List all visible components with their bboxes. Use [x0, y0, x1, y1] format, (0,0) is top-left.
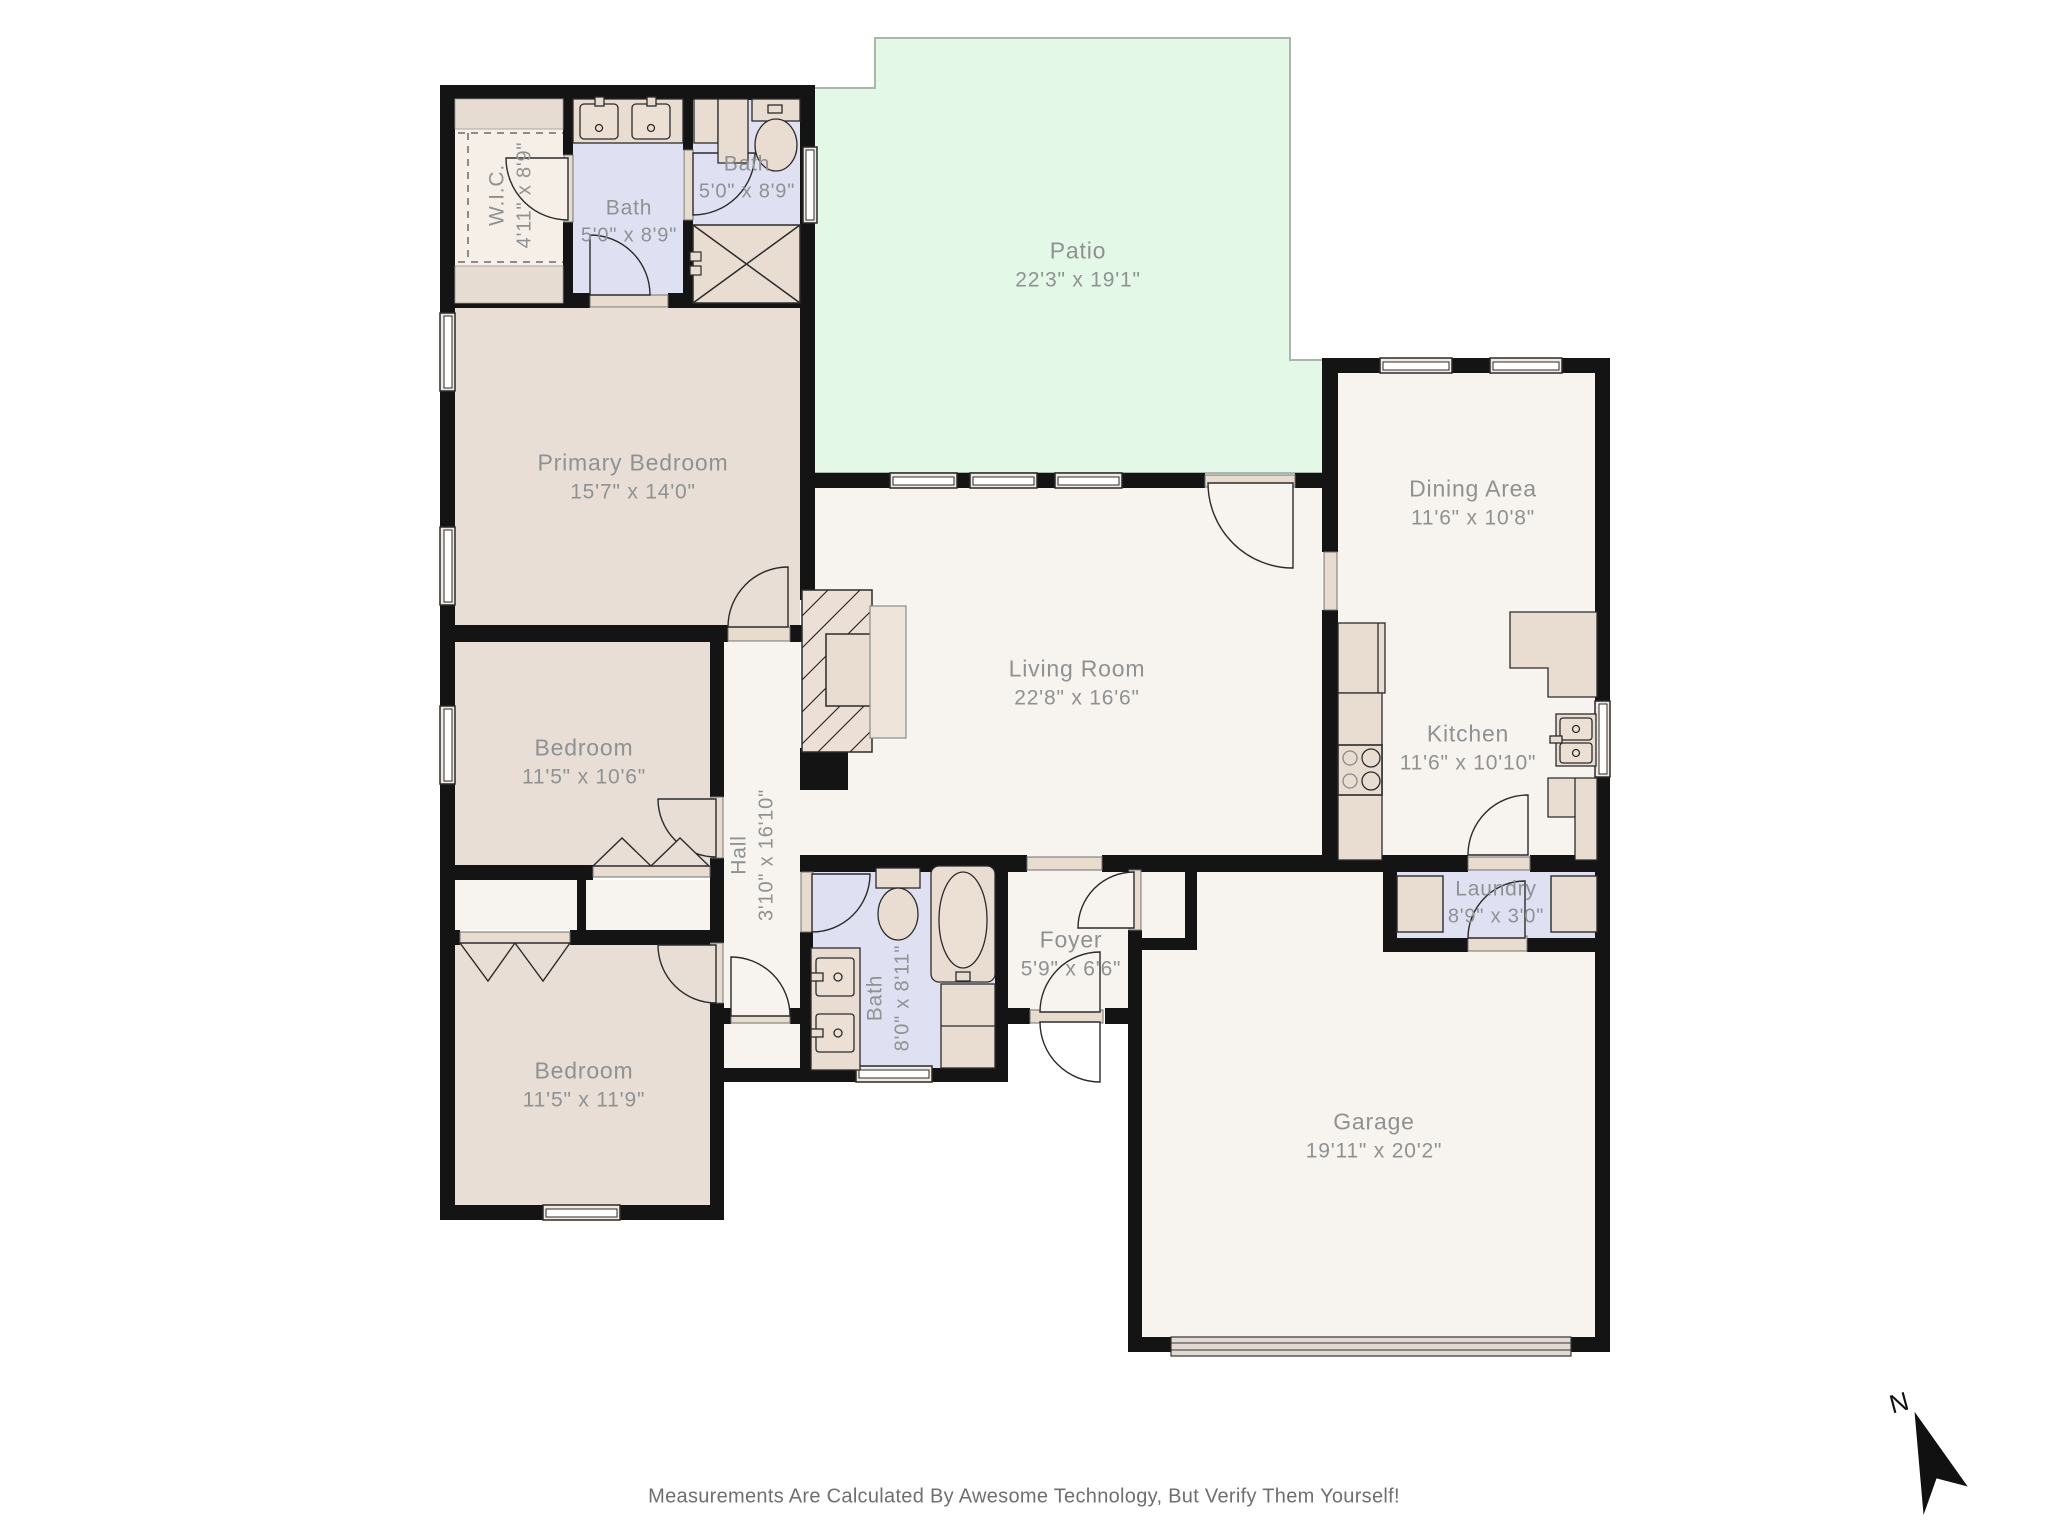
room-name: Bedroom	[522, 732, 646, 763]
room-name: W.I.C.	[483, 142, 511, 249]
room-label-bath-top-center: Bath 5'0" x 8'9"	[581, 194, 677, 249]
front-door-swing-outer	[1040, 1022, 1100, 1082]
room-label-patio: Patio 22'3" x 19'1"	[1015, 235, 1141, 294]
room-dims: 22'8" x 16'6"	[1009, 684, 1146, 712]
shower-stall	[690, 225, 800, 303]
fireplace	[802, 590, 906, 752]
window-bedroom-middle-west	[440, 706, 455, 784]
room-label-living-room: Living Room 22'8" x 16'6"	[1009, 653, 1146, 712]
room-label-laundry: Laundry 8'9" x 3'0"	[1448, 875, 1544, 930]
window-bath-top-right-east	[803, 147, 817, 223]
window-primary-west-2	[440, 527, 455, 605]
room-dims: 15'7" x 14'0"	[538, 478, 729, 506]
room-label-garage: Garage 19'11" x 20'2"	[1306, 1106, 1443, 1165]
floorplan-drawing: N	[0, 0, 2048, 1536]
room-label-kitchen: Kitchen 11'6" x 10'10"	[1400, 718, 1537, 777]
room-dims: 5'0" x 8'9"	[699, 179, 795, 206]
garage-door	[1171, 1337, 1571, 1356]
room-label-dining-area: Dining Area 11'6" x 10'8"	[1409, 473, 1537, 532]
garage-nook-floor	[1190, 866, 1390, 950]
room-name: Kitchen	[1400, 718, 1537, 749]
room-label-wic: W.I.C. 4'11" x 8'9"	[483, 142, 538, 249]
room-dims: 5'9" x 6'6"	[1021, 955, 1122, 983]
room-label-bath-hall: Bath 8'0" x 8'11"	[861, 945, 916, 1052]
window-bedroom-lower-south	[543, 1205, 620, 1220]
window-dining-north-1	[1380, 358, 1452, 373]
room-name: Bath	[699, 150, 795, 178]
room-dims: 5'0" x 8'9"	[581, 223, 677, 250]
room-dims: 11'6" x 10'8"	[1409, 504, 1537, 532]
disclaimer-text: Measurements Are Calculated By Awesome T…	[648, 1486, 1400, 1509]
room-dims: 3'10" x 16'10"	[754, 789, 781, 921]
window-living-north-3	[1055, 473, 1122, 488]
room-label-foyer: Foyer 5'9" x 6'6"	[1021, 924, 1122, 983]
room-dims: 8'9" x 3'0"	[1448, 904, 1544, 931]
closet-left-floor	[455, 880, 577, 930]
room-name: Primary Bedroom	[538, 447, 729, 478]
room-dims: 22'3" x 19'1"	[1015, 266, 1141, 294]
room-dims: 11'5" x 10'6"	[522, 763, 646, 791]
room-dims: 8'0" x 8'11"	[890, 945, 917, 1052]
room-dims: 4'11" x 8'9"	[512, 142, 539, 249]
room-label-hall: Hall 3'10" x 16'10"	[725, 789, 780, 921]
room-label-bedroom-lower: Bedroom 11'5" x 11'9"	[523, 1055, 645, 1114]
window-primary-west-1	[440, 313, 455, 391]
room-name: Bath	[581, 194, 677, 222]
room-name: Garage	[1306, 1106, 1443, 1137]
room-label-bath-top-right: Bath 5'0" x 8'9"	[699, 150, 795, 205]
room-name: Hall	[725, 789, 753, 921]
closet-right-floor	[586, 880, 710, 930]
room-label-primary-bedroom: Primary Bedroom 15'7" x 14'0"	[538, 447, 729, 506]
hall-living-gap-floor	[800, 788, 815, 855]
north-arrow-icon	[1897, 1403, 1972, 1514]
room-name: Laundry	[1448, 875, 1544, 903]
washer	[1397, 876, 1443, 932]
room-dims: 11'6" x 10'10"	[1400, 749, 1537, 777]
window-living-north-2	[970, 473, 1037, 488]
window-living-north-1	[890, 473, 957, 488]
north-arrow: N	[1886, 1376, 1972, 1516]
room-name: Foyer	[1021, 924, 1122, 955]
dryer	[1551, 876, 1597, 932]
room-name: Living Room	[1009, 653, 1146, 684]
room-name: Patio	[1015, 235, 1141, 266]
window-kitchen-east	[1595, 701, 1610, 777]
room-label-bedroom-middle: Bedroom 11'5" x 10'6"	[522, 732, 646, 791]
room-dims: 11'5" x 11'9"	[523, 1086, 645, 1114]
floorplan-page: N W.I.C. 4'11" x 8'9" Bath 5'0" x 8'9" B…	[0, 0, 2048, 1536]
room-name: Bedroom	[523, 1055, 645, 1086]
window-dining-north-2	[1490, 358, 1562, 373]
room-dims: 19'11" x 20'2"	[1306, 1137, 1443, 1165]
bath-top-center-fixtures	[573, 97, 683, 143]
foyer-closet-floor	[1142, 866, 1185, 946]
north-arrow-label: N	[1886, 1386, 1912, 1420]
room-name: Bath	[861, 945, 889, 1052]
window-bath-hall-south	[856, 1066, 932, 1082]
room-name: Dining Area	[1409, 473, 1537, 504]
